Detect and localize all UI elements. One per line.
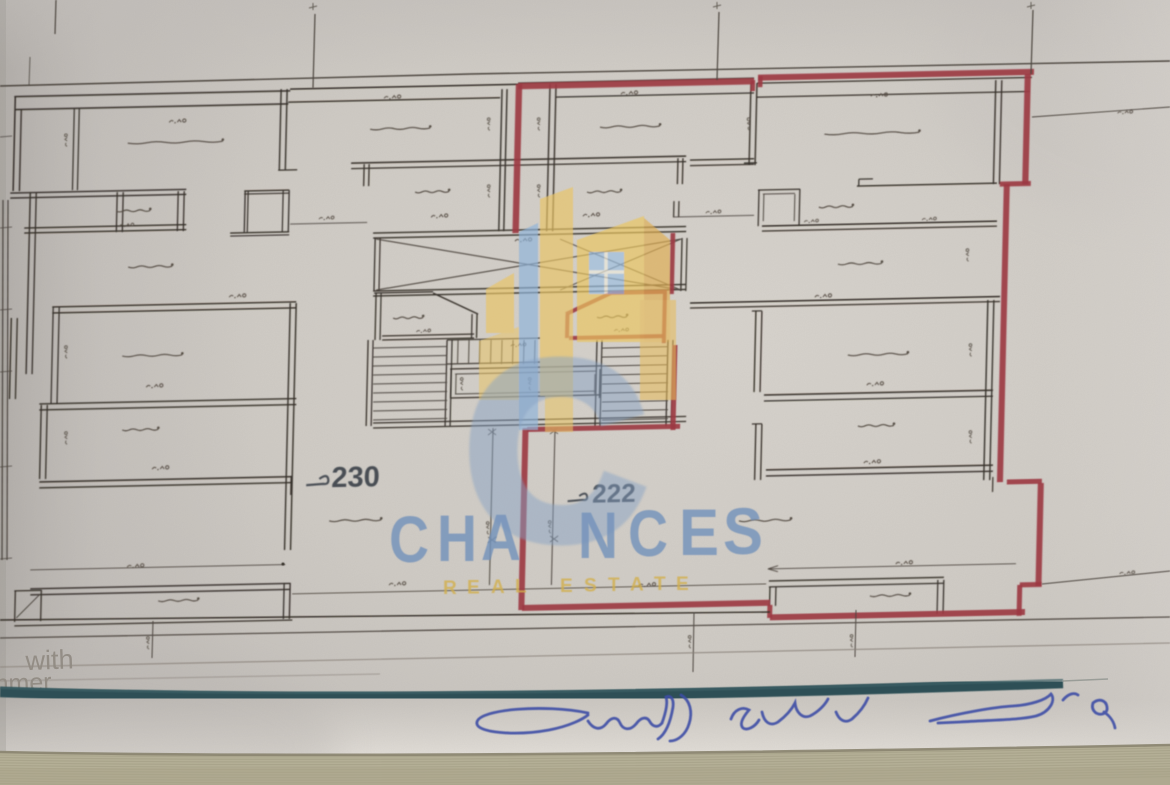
svg-text:S: S (584, 576, 597, 597)
svg-text:C: C (628, 496, 668, 570)
svg-text:T: T (654, 574, 666, 595)
svg-text:N: N (578, 498, 618, 572)
svg-text:H: H (437, 501, 477, 575)
svg-text:S: S (723, 494, 763, 568)
svg-text:230: 230 (331, 461, 380, 494)
svg-text:E: E (679, 495, 719, 569)
svg-text:E: E (676, 574, 689, 595)
svg-text:C: C (389, 502, 429, 576)
svg-text:L: L (515, 577, 527, 598)
svg-text:A: A (630, 575, 644, 596)
svg-text:A: A (481, 500, 521, 574)
svg-text:R: R (443, 578, 457, 599)
svg-text:E: E (467, 578, 480, 599)
svg-text:A: A (491, 577, 505, 598)
svg-text:T: T (608, 575, 620, 596)
svg-text:E: E (560, 576, 573, 597)
